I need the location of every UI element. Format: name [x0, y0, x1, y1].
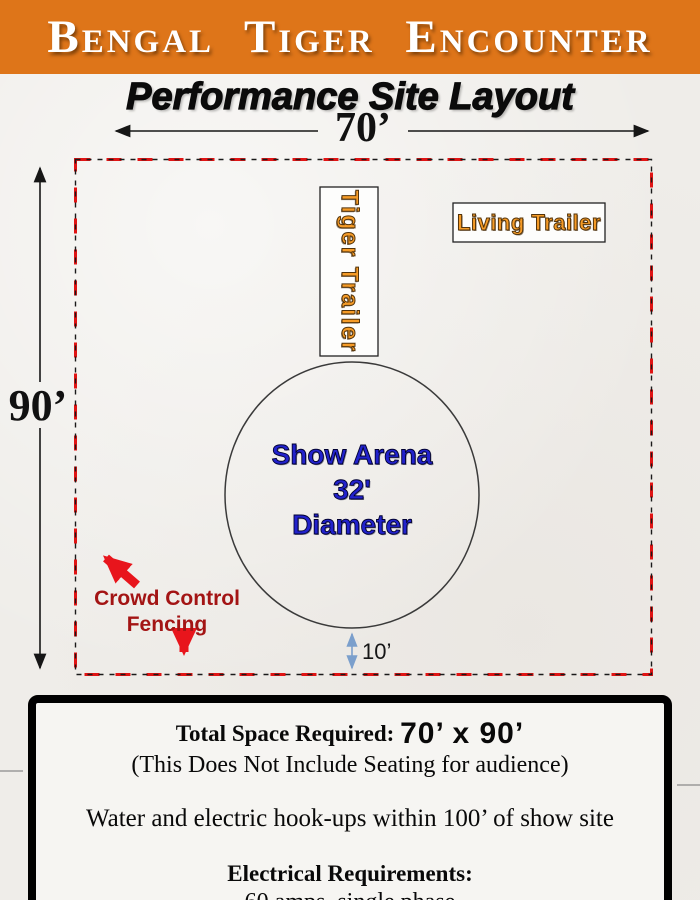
hookups-note: Water and electric hook-ups within 100’ …	[36, 805, 664, 833]
crowd-control-line1: Crowd Control	[73, 586, 261, 612]
seating-note: (This Does Not Include Seating for audie…	[36, 752, 664, 779]
living-trailer-label: Living Trailer	[453, 203, 605, 242]
width-dimension-label: 70’	[292, 104, 434, 152]
show-arena-line2: 32'	[227, 472, 477, 507]
crowd-control-label: Crowd Control Fencing	[73, 586, 261, 638]
show-arena-line3: Diameter	[227, 507, 477, 542]
show-arena-label: Show Arena 32' Diameter	[227, 437, 477, 542]
flyer-page: Bengal Tiger Encounter Performance Site …	[0, 0, 700, 900]
crowd-arrow-upleft	[106, 558, 137, 585]
total-space-line: Total Space Required: 70’ x 90’	[36, 717, 664, 751]
gap-dimension-label: 10’	[362, 639, 391, 665]
requirements-box: Total Space Required: 70’ x 90’ (This Do…	[28, 695, 672, 900]
electrical-value: 60 amps, single phase	[36, 889, 664, 900]
electrical-label: Electrical Requirements:	[36, 861, 664, 887]
tiger-trailer-label: Tiger Trailer	[320, 187, 378, 356]
show-arena-line1: Show Arena	[227, 437, 477, 472]
total-space-label: Total Space Required:	[176, 721, 395, 746]
crowd-control-line2: Fencing	[73, 612, 261, 638]
total-space-value: 70’ x 90’	[400, 717, 524, 750]
height-dimension-label: 90’	[0, 380, 76, 431]
